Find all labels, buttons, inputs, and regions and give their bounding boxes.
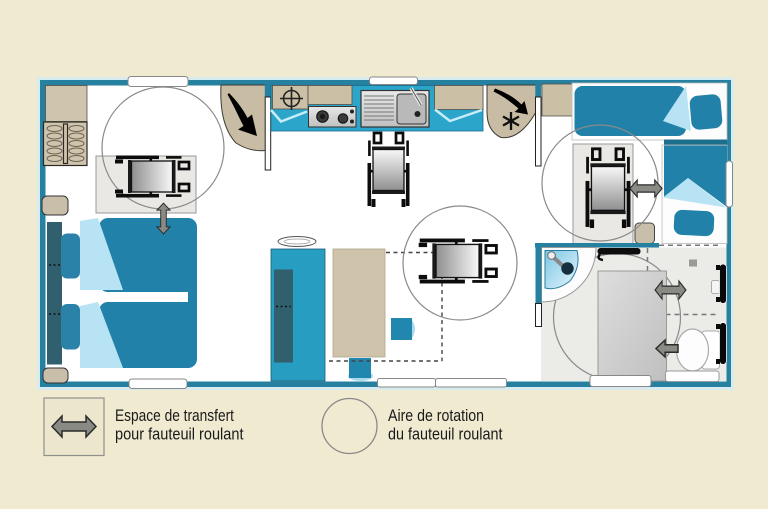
svg-text:Aire de rotation: Aire de rotation <box>388 407 484 425</box>
svg-text:du fauteuil roulant: du fauteuil roulant <box>388 426 503 444</box>
svg-text:pour fauteuil roulant: pour fauteuil roulant <box>115 426 244 444</box>
svg-text:Espace de transfert: Espace de transfert <box>115 407 234 425</box>
